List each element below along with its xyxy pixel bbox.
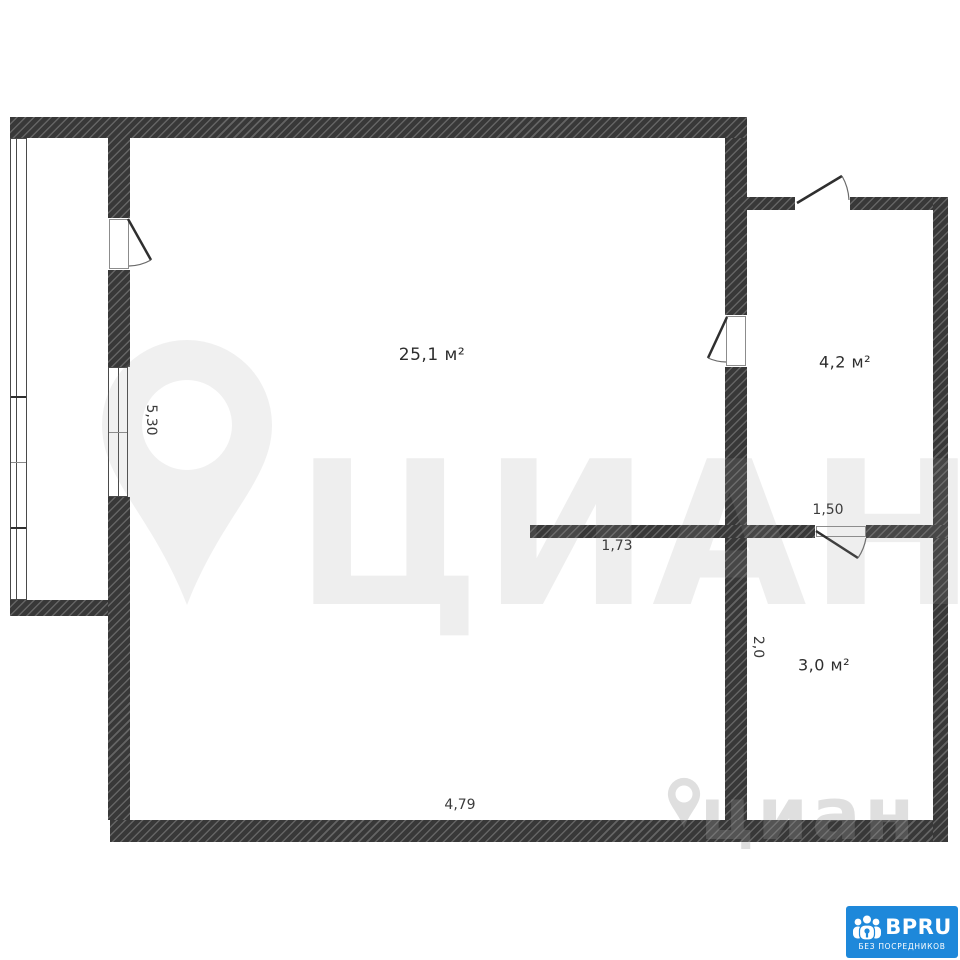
door-arc-balcony [129,260,151,266]
dimension-main-height: 5,30 [143,404,159,435]
door-leaf-balcony [128,219,151,260]
bpru-brand-badge: BPRU БЕЗ ПОСРЕДНИКОВ [846,906,958,958]
room-area-label-bottom: 3,0 м² [798,656,850,675]
glazing-divider [11,462,26,463]
wall-storage-top-left [725,197,795,210]
door-frame-divider [726,316,746,366]
door-leaf-storage-top [797,176,842,203]
brand-tagline: БЕЗ ПОСРЕДНИКОВ [858,943,945,951]
door-leaf-divider [708,317,727,358]
glazing-divider [11,396,26,398]
people-group-icon [852,914,882,941]
dimension-right-width: 1,50 [812,502,843,518]
glazing-divider [11,527,26,529]
dimension-partition: 1,73 [601,538,632,554]
watermark-large-text: ЦИАН [295,436,960,636]
room-area-label-main: 25,1 м² [399,345,465,365]
brand-name: BPRU [885,917,952,938]
balcony-glazing-window [10,138,27,600]
room-area-label-top: 4,2 м² [819,353,871,372]
door-arc-divider [708,358,726,362]
watermark-location-pin-icon [92,330,282,620]
glazing-mullion [16,139,17,599]
watermark-small-text: циан [700,778,918,850]
floor-plan: ЦИАН циан 25,1 м² 4,2 м² 3,0 м² 5,30 1,5… [0,0,960,960]
watermark-small-pin-icon [666,776,702,831]
dimension-main-width: 4,79 [444,797,475,813]
wall-top [10,117,747,138]
wall-left-upper [108,138,130,218]
door-frame-balcony [109,219,129,269]
dimension-bottom-height: 2,0 [750,636,766,658]
door-arc-storage-top [842,176,849,200]
wall-divider-upper [725,138,747,315]
